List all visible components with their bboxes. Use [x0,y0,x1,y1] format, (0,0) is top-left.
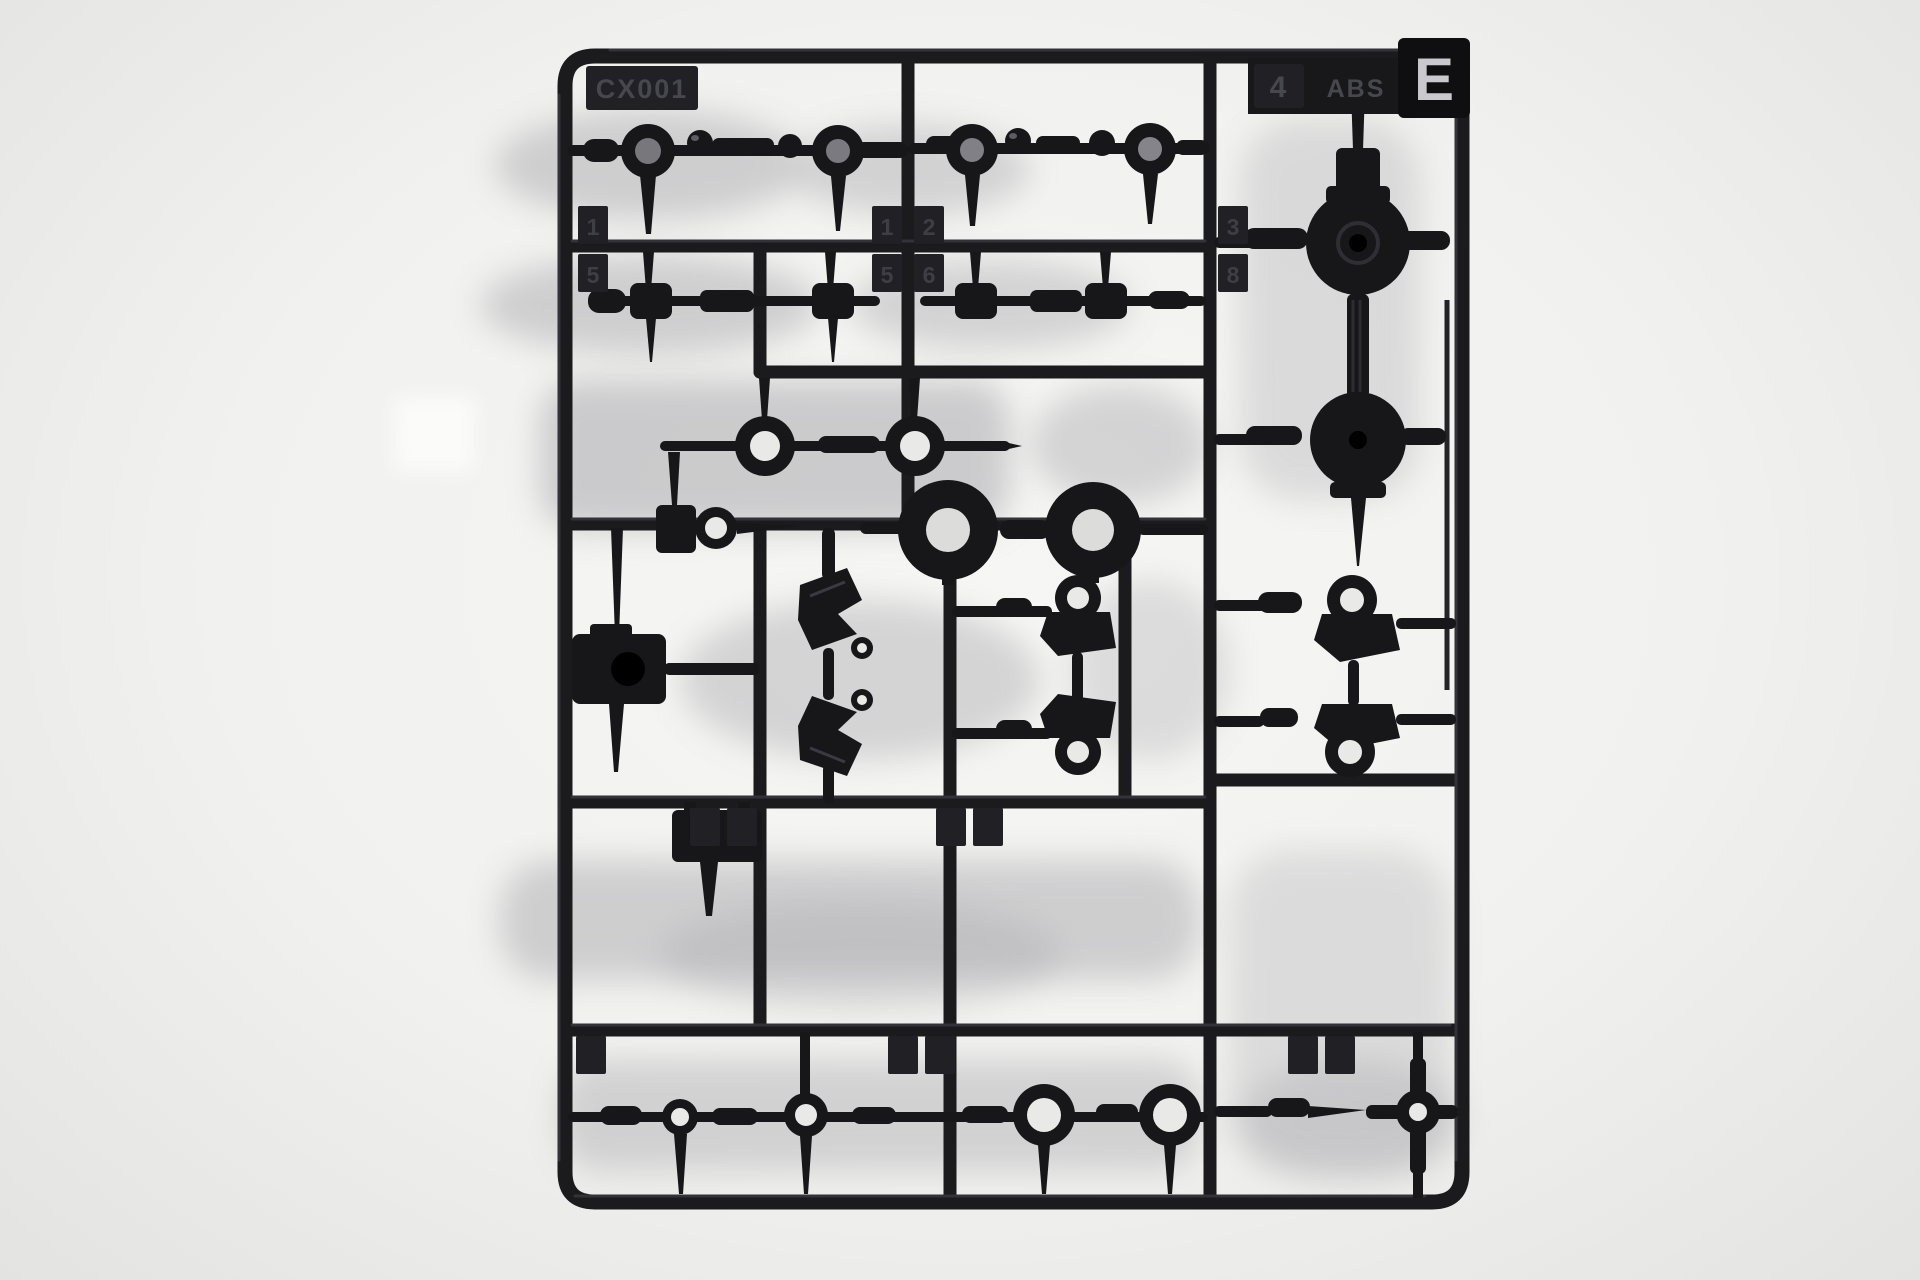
part-number-tag [1288,1036,1318,1074]
part-number-tag [1325,1036,1355,1074]
svg-text:5: 5 [881,262,894,288]
svg-text:1: 1 [881,214,894,240]
part-number-tag [925,1036,955,1074]
svg-text:3: 3 [1227,214,1240,240]
photo-of-model-kit-sprue: CX001 4 ABS E 15125638 [0,0,1920,1280]
part-number-tag [936,808,966,846]
svg-text:1: 1 [587,214,600,240]
knuckle-parts-right [1214,575,1456,777]
svg-text:2: 2 [923,214,936,240]
svg-text:8: 8 [1227,262,1240,288]
svg-text:5: 5 [587,262,600,288]
part-number-tag: 6 [914,254,944,292]
part-number-tag [690,808,720,846]
part-number-tag: 1 [578,206,608,244]
mold-code-text: CX001 [596,74,689,104]
sprue-photo-svg: CX001 4 ABS E 15125638 [0,0,1920,1280]
svg-text:6: 6 [923,262,936,288]
part-number-tag: 2 [914,206,944,244]
material-text: ABS [1327,75,1386,103]
part-number-tag: 8 [1218,254,1248,292]
part-number-tag [576,1036,606,1074]
part-number-tag: 3 [1218,206,1248,244]
part-number-tag [727,808,757,846]
part-number-tag [888,1036,918,1074]
mold-number-text: 4 [1270,71,1289,104]
part-number-tag: 5 [578,254,608,292]
part-number-tag: 5 [872,254,902,292]
part-number-tag: 1 [872,206,902,244]
part-number-tag [973,808,1003,846]
runner-letter-text: E [1414,46,1454,113]
